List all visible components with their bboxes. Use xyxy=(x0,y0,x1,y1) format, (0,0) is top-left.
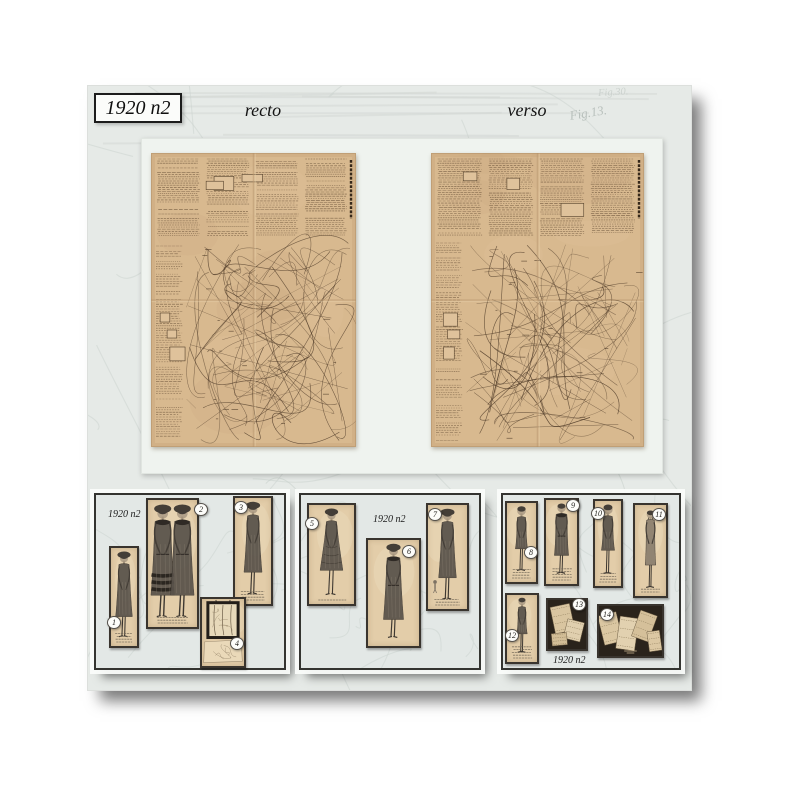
model-2-illustration xyxy=(148,500,197,627)
model-number-3: 3 xyxy=(234,501,248,514)
model-1-illustration xyxy=(111,548,137,646)
model-number-5: 5 xyxy=(305,517,319,530)
thumbnail-panel-1: 1920 n2 1 2 3 4 xyxy=(94,493,286,670)
watermark-fig-mid-label: Fig.13. xyxy=(568,102,608,123)
model-9-illustration xyxy=(546,500,577,584)
model-number-12: 12 xyxy=(505,629,519,642)
thumbnail-panel-3: 1920 n2 8 9 10 11 12 13 14 xyxy=(501,493,681,670)
model-number-7: 7 xyxy=(428,508,442,521)
model-card-8 xyxy=(505,501,538,584)
model-number-1: 1 xyxy=(107,616,121,629)
model-4-illustration xyxy=(202,599,244,666)
thumbnail-panel-2: 1920 n2 5 6 7 xyxy=(299,493,481,670)
model-8-illustration xyxy=(507,503,536,582)
panel-3-edition-label: 1920 n2 xyxy=(553,656,586,666)
pattern-sheet-verso xyxy=(431,153,644,447)
model-number-11: 11 xyxy=(652,508,666,521)
recto-label: recto xyxy=(218,100,308,121)
edition-label: 1920 n2 xyxy=(106,97,171,120)
model-card-1 xyxy=(109,546,139,648)
sheet-board xyxy=(141,138,663,474)
model-card-2 xyxy=(146,498,199,629)
watermark-fig-top-label: Fig.30. xyxy=(597,86,629,99)
model-number-2: 2 xyxy=(194,503,208,516)
model-number-13: 13 xyxy=(572,598,586,611)
model-number-4: 4 xyxy=(230,637,244,650)
panel-2-edition-label: 1920 n2 xyxy=(373,515,406,525)
pattern-sheet-recto xyxy=(151,153,356,447)
model-number-8: 8 xyxy=(524,546,538,559)
model-number-9: 9 xyxy=(566,499,580,512)
pattern-supplement-photo: Fig.30. Fig.13. 1920 n2 recto verso 1920… xyxy=(87,85,692,691)
model-number-10: 10 xyxy=(591,507,605,520)
model-card-4 xyxy=(200,597,246,668)
verso-label: verso xyxy=(482,100,572,121)
edition-label-box: 1920 n2 xyxy=(94,93,182,123)
model-number-14: 14 xyxy=(600,608,614,621)
model-number-6: 6 xyxy=(402,545,416,558)
panel-1-edition-label: 1920 n2 xyxy=(108,510,141,520)
